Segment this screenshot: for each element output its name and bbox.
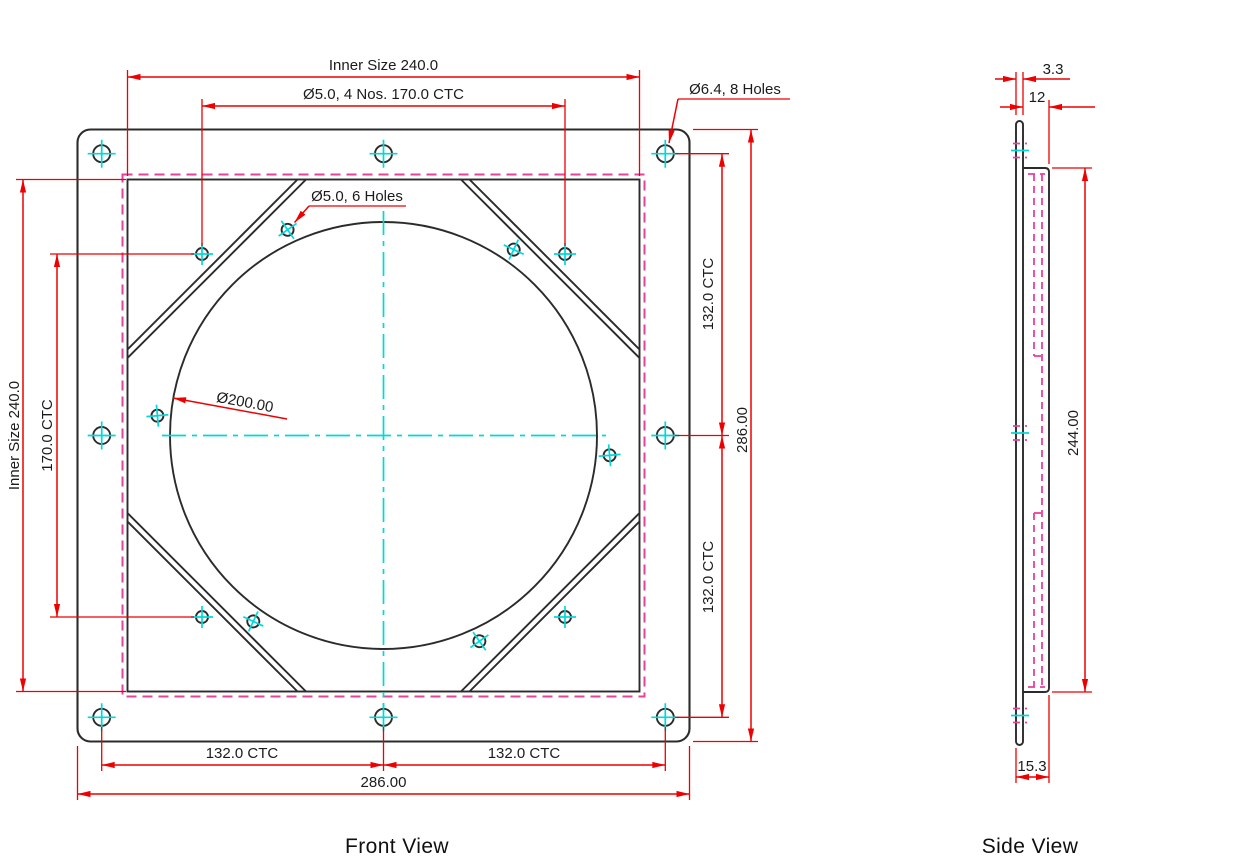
callout-text-6-holes: Ø5.0, 6 Holes <box>311 188 403 205</box>
dim-text-overall-right: 286.00 <box>734 407 751 453</box>
dim-text-ctc-right-bottom: 132.0 CTC <box>700 541 717 614</box>
dim-text-body-thickness: 12 <box>1029 89 1046 106</box>
dim-bottom: 132.0 CTC 132.0 CTC 286.00 <box>78 727 690 800</box>
dim-total-thickness: 15.3 <box>1016 695 1049 783</box>
callout-6-holes: Ø5.0, 6 Holes <box>295 188 407 223</box>
dim-text-4-holes: Ø5.0, 4 Nos. 170.0 CTC <box>303 86 464 103</box>
front-view-label: Front View <box>345 835 449 858</box>
dim-text-total-thickness: 15.3 <box>1017 758 1046 775</box>
cad-drawing-canvas: Inner Size 240.0 Ø5.0, 4 Nos. 170.0 CTC … <box>0 0 1248 863</box>
technical-drawing: Inner Size 240.0 Ø5.0, 4 Nos. 170.0 CTC … <box>0 0 1248 863</box>
callout-text-bore: Ø200.00 <box>215 389 275 416</box>
centerlines <box>162 211 606 712</box>
callout-text-8-holes: Ø6.4, 8 Holes <box>689 81 781 98</box>
front-view: Inner Size 240.0 Ø5.0, 4 Nos. 170.0 CTC … <box>6 57 790 800</box>
dim-text-ctc-bottom-right: 132.0 CTC <box>488 745 561 762</box>
dim-text-ctc-left: 170.0 CTC <box>39 399 56 472</box>
dim-text-ctc-right-top: 132.0 CTC <box>700 258 717 331</box>
gusset-hole <box>191 606 213 628</box>
dim-text-inner-size-left: Inner Size 240.0 <box>6 381 23 490</box>
side-hidden-recess <box>1028 174 1045 687</box>
mounting-hole <box>88 140 116 168</box>
dim-body-thickness: 12 <box>1000 89 1095 164</box>
side-hole-marks <box>1011 144 1029 723</box>
dim-text-body-height: 244.00 <box>1065 410 1082 456</box>
dim-text-flange-thickness: 3.3 <box>1043 61 1064 78</box>
side-view: 3.3 12 244.00 15.3 <box>995 61 1095 783</box>
gusset-hole <box>191 243 213 265</box>
callout-bore-diameter: Ø200.00 <box>173 389 287 419</box>
dim-right-side: 132.0 CTC 132.0 CTC 286.00 <box>675 130 758 742</box>
dim-text-overall-bottom: 286.00 <box>361 774 407 791</box>
dim-body-height: 244.00 <box>1052 168 1092 692</box>
bore-bolt-hole <box>598 443 622 467</box>
mounting-hole <box>88 422 116 450</box>
dim-text-inner-size-top: Inner Size 240.0 <box>329 57 438 74</box>
mounting-hole <box>370 140 398 168</box>
dim-text-ctc-bottom-left: 132.0 CTC <box>206 745 279 762</box>
side-view-label: Side View <box>982 835 1079 858</box>
bore-bolt-hole <box>145 404 169 428</box>
gusset-hole <box>554 606 576 628</box>
side-body-outline <box>1023 168 1049 692</box>
gusset-hole <box>554 243 576 265</box>
